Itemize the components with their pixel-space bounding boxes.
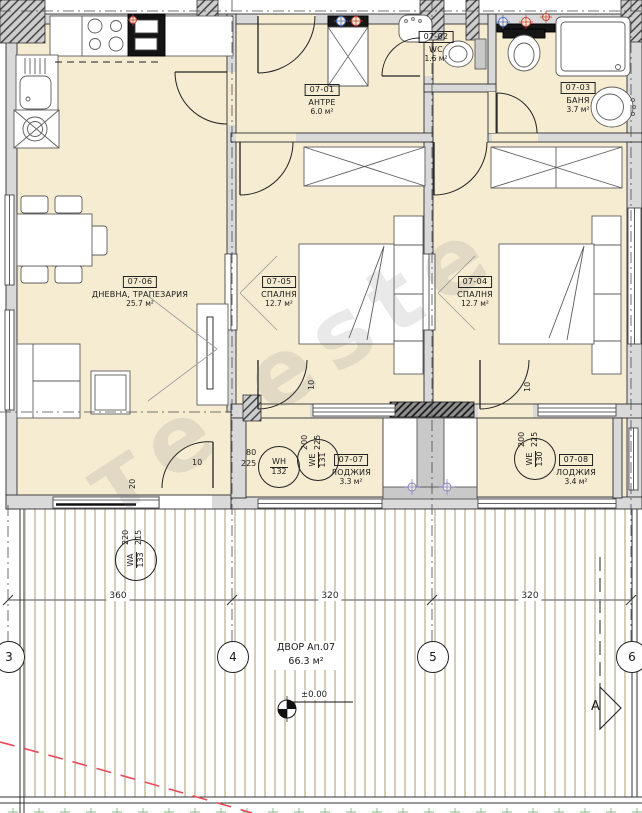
room-id-badge: 07-01 xyxy=(305,84,340,96)
opening-number: 130 xyxy=(536,451,545,466)
room-id-badge: 07-03 xyxy=(561,82,596,94)
opening-marker-wa133: WA 133 xyxy=(115,539,157,581)
opening-number: 131 xyxy=(319,452,328,467)
wall-dim: 10 xyxy=(192,458,202,467)
yard-name: ДВОР Ап.07 xyxy=(277,641,335,655)
room-name: СПАЛНЯ xyxy=(261,290,297,299)
opening-width: 220 xyxy=(121,530,130,545)
grid-dim-320b: 320 xyxy=(518,591,541,601)
floor-plan: те este 07-01 АНТРЕ 6.0 м² 07-02 WC 1.6 … xyxy=(0,0,642,813)
room-label-wc: 07-02 WC 1.6 м² xyxy=(419,31,454,64)
room-id-badge: 07-08 xyxy=(559,454,594,466)
room-id-badge: 07-06 xyxy=(123,276,158,288)
wall-dim: 10 xyxy=(307,380,316,390)
room-area: 25.7 м² xyxy=(126,300,154,309)
opening-height: 225 xyxy=(530,432,539,447)
opening-width: 80 xyxy=(246,448,256,457)
room-name: АНТРЕ xyxy=(308,98,335,107)
room-name: БАНЯ xyxy=(566,96,589,105)
room-area: 3.7 м² xyxy=(567,106,590,115)
elevation-value: ±0.00 xyxy=(299,690,329,700)
service-shaft xyxy=(328,16,368,86)
opening-number: 132 xyxy=(271,468,286,477)
yard-label: ДВОР Ап.07 66.3 м² xyxy=(274,641,338,670)
wall-dim: 20 xyxy=(128,479,137,489)
room-area: 12.7 м² xyxy=(265,300,293,309)
room-area: 1.6 м² xyxy=(425,55,448,64)
wall-dim: 10 xyxy=(523,382,532,392)
opening-height: 215 xyxy=(134,530,143,545)
opening-marker-wh132: WH 132 xyxy=(258,446,300,488)
room-name: WC xyxy=(429,45,443,54)
yard-area: 66.3 м² xyxy=(277,655,335,669)
room-id-badge: 07-05 xyxy=(262,276,297,288)
loggia-divider-shaft xyxy=(383,418,477,499)
section-letter: А xyxy=(591,699,600,714)
room-label-spalnya-05: 07-05 СПАЛНЯ 12.7 м² xyxy=(261,276,297,309)
room-label-antre: 07-01 АНТРЕ 6.0 м² xyxy=(305,84,340,117)
room-area: 12.7 м² xyxy=(461,300,489,309)
room-id-badge: 07-04 xyxy=(458,276,493,288)
opening-height: 225 xyxy=(313,435,322,450)
room-label-spalnya-04: 07-04 СПАЛНЯ 12.7 м² xyxy=(457,276,493,309)
room-name: ЛОДЖИЯ xyxy=(556,468,596,477)
room-name: ДНЕВНА, ТРАПЕЗАРИЯ xyxy=(92,290,188,299)
opening-height: 225 xyxy=(241,459,256,468)
room-area: 6.0 м² xyxy=(311,108,334,117)
grid-bubble-5: 5 xyxy=(417,641,449,673)
room-name: ЛОДЖИЯ xyxy=(331,468,371,477)
room-label-lodzhiya-08: 07-08 ЛОДЖИЯ 3.4 м² xyxy=(556,454,596,487)
room-area: 3.4 м² xyxy=(565,478,588,487)
room-area: 3.3 м² xyxy=(340,478,363,487)
room-label-banya: 07-03 БАНЯ 3.7 м² xyxy=(561,82,596,115)
opening-number: 133 xyxy=(137,552,146,567)
room-label-dnevna: 07-06 ДНЕВНА, ТРАПЕЗАРИЯ 25.7 м² xyxy=(92,276,188,309)
opening-width: 200 xyxy=(517,432,526,447)
room-name: СПАЛНЯ xyxy=(457,290,493,299)
grid-dim-320a: 320 xyxy=(318,591,341,601)
grid-dim-360: 360 xyxy=(106,591,129,601)
grid-bubble-4: 4 xyxy=(217,641,249,673)
opening-width: 200 xyxy=(300,435,309,450)
room-id-badge: 07-02 xyxy=(419,31,454,43)
grid-bubble-6: 6 xyxy=(616,641,642,673)
